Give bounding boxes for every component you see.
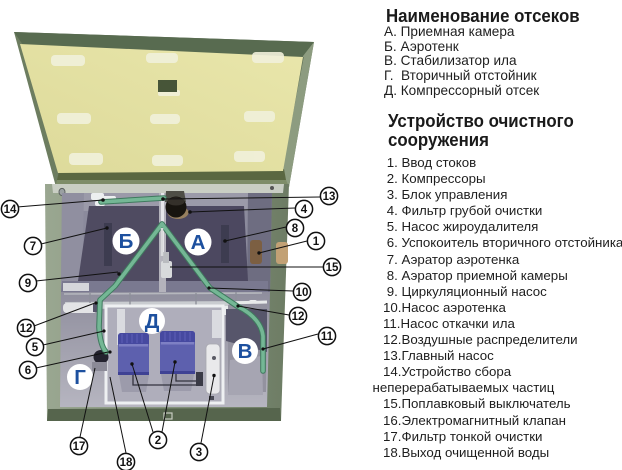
svg-text:А: А [191,231,206,254]
svg-text:4: 4 [301,204,308,216]
svg-text:Б: Б [119,230,134,253]
svg-text:5: 5 [32,342,39,354]
svg-text:7: 7 [30,241,36,253]
svg-text:8: 8 [292,223,299,235]
svg-text:2: 2 [155,435,161,447]
svg-text:14: 14 [4,204,17,216]
svg-text:6: 6 [25,365,31,377]
svg-text:Г: Г [74,366,86,389]
svg-text:1: 1 [313,236,320,248]
svg-text:В: В [238,340,253,363]
svg-text:18: 18 [120,457,133,469]
svg-text:12: 12 [20,323,33,335]
svg-text:9: 9 [25,278,31,290]
svg-text:3: 3 [196,447,202,459]
svg-text:Д: Д [145,310,160,333]
svg-text:12: 12 [292,311,305,323]
svg-text:15: 15 [326,262,339,274]
svg-text:11: 11 [321,331,334,343]
svg-text:10: 10 [296,287,309,299]
svg-text:17: 17 [73,441,86,453]
svg-text:13: 13 [323,191,336,203]
